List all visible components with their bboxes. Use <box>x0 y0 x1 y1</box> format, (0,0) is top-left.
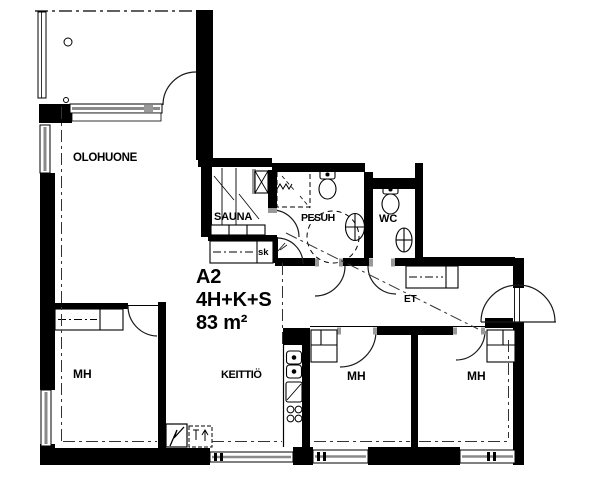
balcony <box>35 11 196 103</box>
wall <box>293 447 313 465</box>
room-label-bedroom-left: MH <box>73 367 92 381</box>
hall-washroom-door-arc <box>315 266 345 296</box>
bedroom-middle-closet <box>311 330 337 362</box>
layout-code: 4H+K+S <box>196 289 272 312</box>
room-label-kitchen: KEITTIÖ <box>221 369 262 381</box>
wall <box>268 170 277 212</box>
door-post <box>339 259 343 267</box>
living-room-window <box>70 104 162 121</box>
balcony-column-icon <box>64 38 72 46</box>
area-label: 83 m² <box>196 312 272 335</box>
bedroom-middle-window <box>313 450 368 463</box>
electrical-panel <box>166 424 212 447</box>
door-post <box>373 328 377 335</box>
wall <box>364 172 373 258</box>
door-post <box>391 259 395 267</box>
drain-icon <box>292 370 296 374</box>
door-post <box>453 328 457 335</box>
door-post <box>369 259 373 267</box>
wall <box>368 447 460 465</box>
heater-squiggle-icon <box>277 184 292 189</box>
bedroom-west-window <box>41 390 51 446</box>
wall <box>418 327 453 335</box>
wall <box>196 10 213 160</box>
door-post <box>315 259 319 267</box>
room-label-bedroom-right: MH <box>467 369 486 383</box>
wall <box>201 158 212 237</box>
kitchen-window <box>210 452 293 462</box>
balcony-door-arc <box>163 72 196 105</box>
apartment-id: A2 <box>196 266 272 289</box>
stove-burner-icon <box>287 406 294 413</box>
washbasin-icon <box>396 228 412 252</box>
entrance-door-arc <box>481 285 555 322</box>
stove-burner-icon <box>287 415 294 422</box>
bedroom-left-closet <box>55 309 123 330</box>
wall <box>411 327 418 447</box>
hall-closet <box>406 266 458 288</box>
wall <box>302 328 310 447</box>
wc-door-arc <box>368 266 396 294</box>
plan-drawing <box>0 0 600 478</box>
wall <box>40 448 210 465</box>
wall-face-lines <box>128 306 513 327</box>
toilet-icon <box>382 185 399 214</box>
wall <box>423 257 515 266</box>
sauna-bench <box>211 225 265 235</box>
threshold-mark <box>277 243 287 252</box>
door-post <box>268 208 277 213</box>
room-label-entry-hall: ET <box>404 294 417 305</box>
dishwasher-mark <box>287 384 301 400</box>
stove-burner-icon <box>295 415 302 422</box>
wall <box>158 302 166 448</box>
bedroom-right-window <box>460 450 515 463</box>
bedroom-right-closet <box>487 330 515 362</box>
door-post <box>481 328 485 335</box>
wall <box>415 163 423 258</box>
bedroom-left-door-arc <box>128 306 157 336</box>
sauna-door-arc <box>272 210 299 237</box>
room-label-wc: WC <box>379 213 397 225</box>
title-block: A2 4H+K+S 83 m² <box>196 266 272 335</box>
shower-marks <box>282 176 310 208</box>
door-post <box>337 328 341 335</box>
wall <box>275 258 315 266</box>
room-label-closet: sk <box>258 247 269 258</box>
room-label-sauna: SAUNA <box>214 211 252 223</box>
bedroom-middle-door-arc <box>340 331 376 367</box>
drain-icon <box>292 356 296 360</box>
wall <box>377 327 413 335</box>
stove-burner-icon <box>295 406 302 413</box>
room-label-washroom: PESUH <box>301 212 335 224</box>
room-label-bedroom-middle: MH <box>347 369 366 383</box>
wall <box>208 235 277 241</box>
room-label-living-room: OLOHUONE <box>73 152 137 164</box>
balcony-railing <box>38 12 46 98</box>
wall <box>198 158 272 167</box>
bedroom-right-door-arc <box>456 331 485 360</box>
living-room-west-window <box>40 125 50 173</box>
washbasin-icon <box>346 214 365 241</box>
wall <box>366 178 415 189</box>
floor-plan: OLOHUONE SAUNA PESUH WC sk MH KEITTIÖ MH… <box>0 0 600 478</box>
wall <box>55 303 128 309</box>
balcony-drain-icon <box>64 98 69 103</box>
wall <box>40 173 55 390</box>
kitchen-fixtures <box>284 345 303 447</box>
wall <box>343 258 369 266</box>
wall <box>39 104 72 123</box>
meter-box <box>189 426 212 447</box>
toilet-icon <box>319 170 336 199</box>
walls <box>39 10 524 465</box>
wall <box>395 258 423 266</box>
